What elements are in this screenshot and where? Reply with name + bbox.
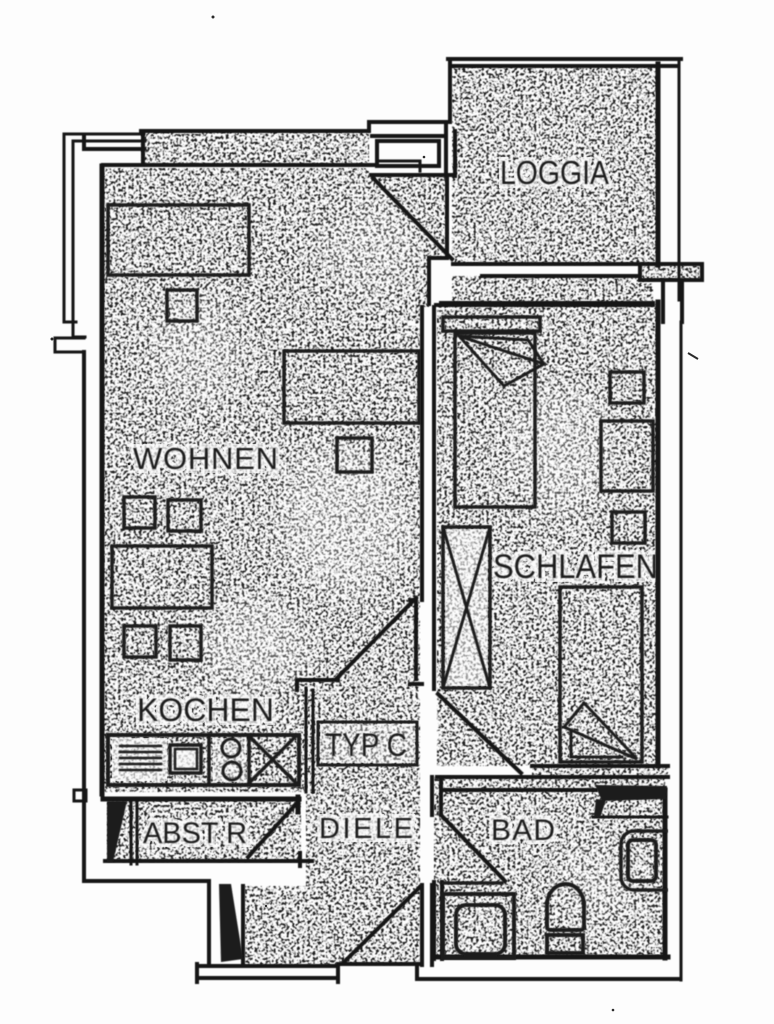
svg-text:KOCHEN: KOCHEN [137,692,274,728]
svg-text:LOGGIA: LOGGIA [500,154,609,191]
svg-text:SCHLAFEN: SCHLAFEN [493,548,658,586]
svg-text:BAD: BAD [491,814,555,847]
svg-text:ABST R: ABST R [143,817,247,850]
svg-text:TYP C: TYP C [325,727,407,763]
svg-text:WOHNEN: WOHNEN [133,441,278,476]
svg-text:DIELE: DIELE [319,813,413,845]
